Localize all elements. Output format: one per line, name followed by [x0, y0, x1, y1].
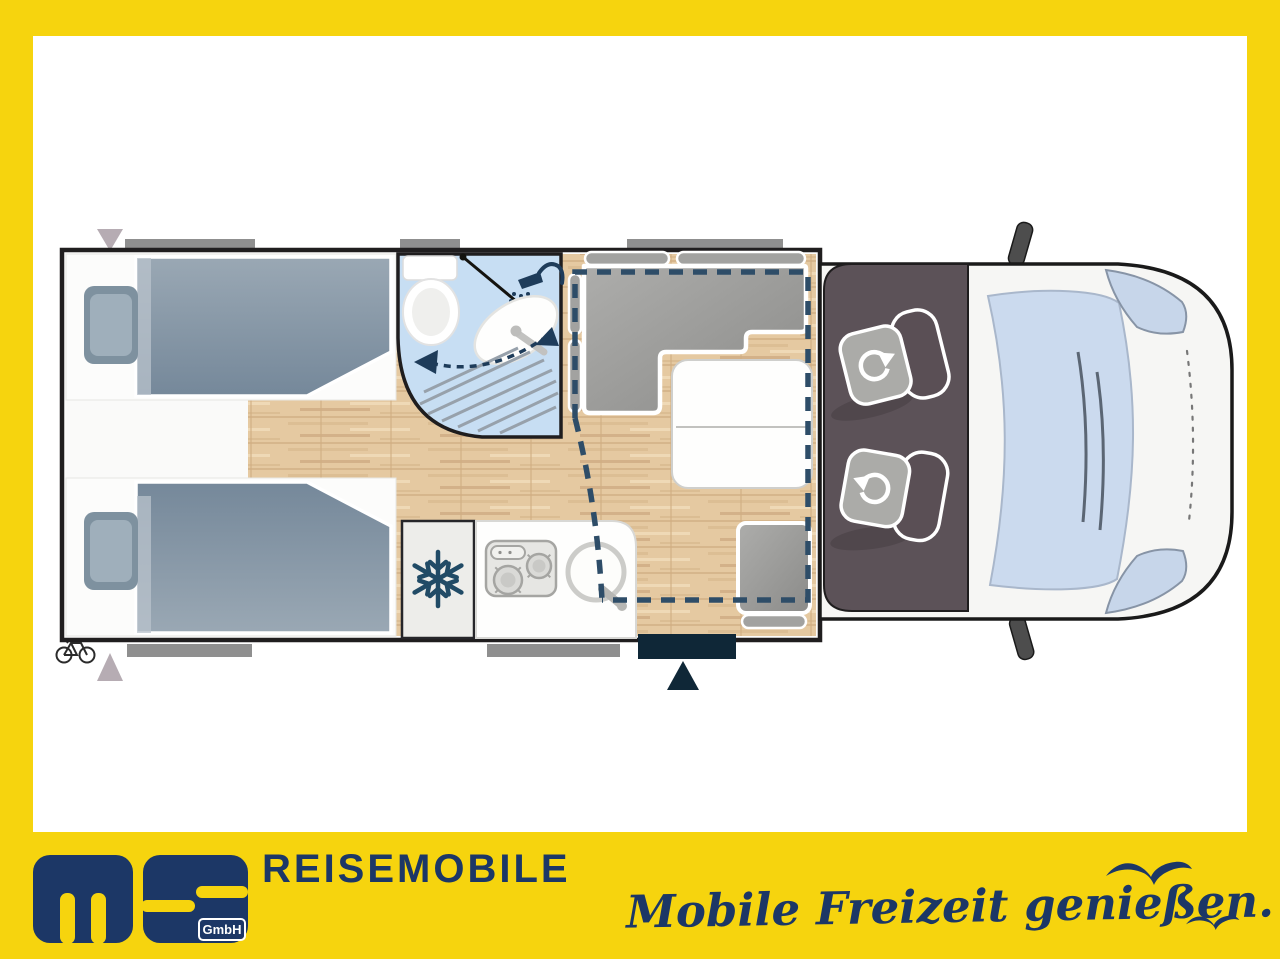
vehicle-front: [820, 221, 1232, 661]
toilet: [403, 256, 459, 345]
entry-door-step: [638, 634, 736, 659]
between-beds-step: [66, 400, 248, 478]
seagull-icon: [1186, 916, 1239, 930]
backrest-cushion: [569, 274, 581, 334]
backrest-cushion: [569, 340, 581, 412]
pillow: [84, 512, 138, 590]
pillow: [84, 286, 138, 364]
reisemobile-wordmark: REISEMOBILE: [262, 849, 571, 889]
seagulls: [1100, 850, 1250, 940]
single-bed-top: [66, 254, 396, 400]
single-bed-bottom: [66, 478, 396, 636]
stove: [483, 541, 562, 605]
dinette-table: [672, 360, 812, 488]
side-mirror-icon: [1007, 221, 1035, 268]
window-icon-bottom-kitchen: [487, 644, 620, 657]
ms-logo: GmbH: [33, 853, 248, 945]
side-seat: [738, 523, 810, 628]
windshield: [988, 291, 1133, 590]
backrest-cushion: [677, 252, 805, 265]
rear-triangle-marker-icon: [97, 653, 123, 681]
seagull-icon: [1106, 862, 1192, 885]
entry-arrow-icon: [667, 661, 699, 690]
cab-floor: [824, 264, 968, 611]
kitchen-counter: [476, 521, 636, 638]
bicycle-icon: [57, 639, 95, 663]
bathroom: [398, 254, 569, 438]
fridge: [402, 521, 474, 638]
window-icon-bottom-bedroom: [127, 644, 252, 657]
logo-gmbh-label: GmbH: [203, 922, 242, 937]
dealer-ad-canvas: GmbH REISEMOBILE Mobile Freizeit genieße…: [0, 0, 1280, 959]
motorhome-floorplan: [0, 0, 1280, 959]
backrest-cushion: [585, 252, 669, 265]
side-mirror-icon: [1008, 614, 1036, 661]
front-triangle-marker-icon: [97, 229, 123, 251]
